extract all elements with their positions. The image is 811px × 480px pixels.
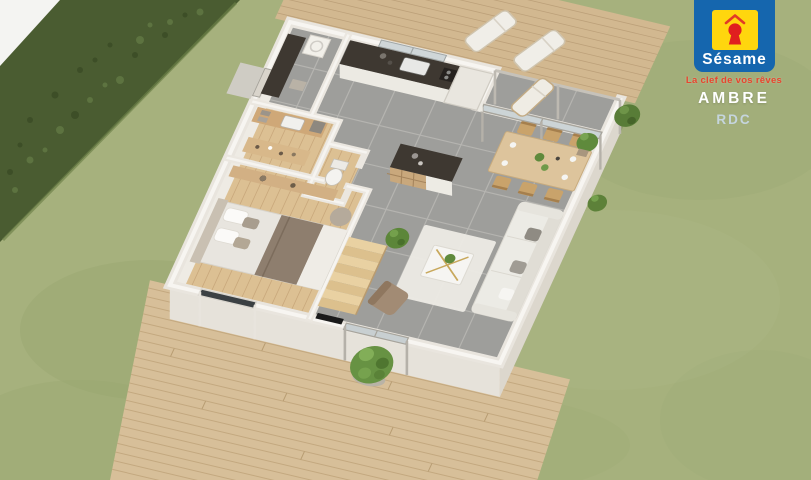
brand-tagline: La clef de vos rêves bbox=[664, 75, 804, 86]
floor-label: RDC bbox=[664, 112, 804, 127]
render-canvas bbox=[0, 0, 811, 480]
brand-name: Sésame bbox=[694, 51, 775, 69]
brand-logo: MAISONS Sésame bbox=[694, 0, 775, 72]
model-name: AMBRE bbox=[664, 90, 804, 108]
floorplan-render: MAISONS Sésame La clef de vos rêves AMBR… bbox=[0, 0, 811, 480]
brand-top-text: MAISONS bbox=[694, 0, 775, 6]
keyhole-icon bbox=[712, 10, 758, 50]
